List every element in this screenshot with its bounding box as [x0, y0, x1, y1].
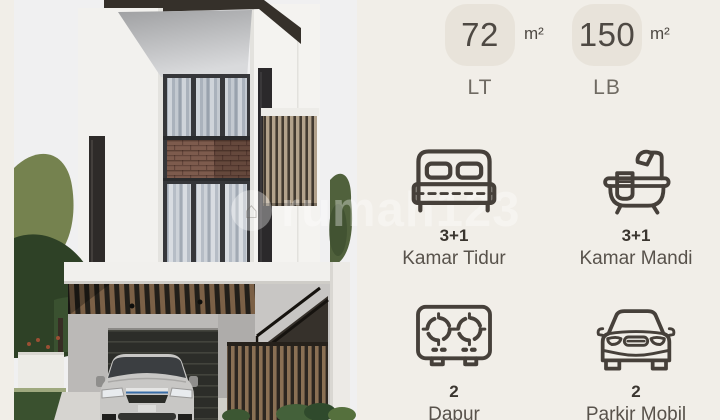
parking-count: 2 — [571, 382, 701, 402]
bathroom-feature: 3+1 Kamar Mandi — [571, 142, 701, 270]
specs-panel: 72 m² LT 150 m² LB 3+1 Kamar Tidur — [357, 0, 720, 420]
land-area-unit: m² — [524, 24, 544, 44]
bathroom-count: 3+1 — [571, 226, 701, 246]
bedroom-label: Kamar Tidur — [389, 248, 519, 270]
car-icon — [571, 300, 701, 372]
bedroom-count: 3+1 — [389, 226, 519, 246]
parking-label: Parkir Mobil — [571, 404, 701, 420]
kitchen-label: Dapur — [389, 404, 519, 420]
building-area-unit: m² — [650, 24, 670, 44]
building-area-value: 150 — [579, 16, 636, 54]
stove-icon — [389, 300, 519, 372]
land-area-card: 72 — [445, 4, 515, 66]
land-area-label: LT — [430, 76, 530, 100]
tree-trunk — [58, 318, 63, 354]
house-render-photo — [14, 0, 357, 420]
property-listing-card: { "watermark": { "brand": "rumah123" }, … — [0, 0, 720, 420]
white-fence — [18, 352, 64, 392]
beam-shadow — [64, 281, 350, 284]
wood-slat-screen — [263, 116, 317, 206]
building-area-card: 150 — [572, 4, 642, 66]
downlight — [130, 304, 135, 309]
parking-feature: 2 Parkir Mobil — [571, 300, 701, 420]
glazing — [163, 74, 250, 270]
kitchen-feature: 2 Dapur — [389, 300, 519, 420]
bed-icon — [389, 142, 519, 216]
bathtub-icon — [571, 142, 701, 216]
bedroom-feature: 3+1 Kamar Tidur — [389, 142, 519, 270]
bathroom-label: Kamar Mandi — [571, 248, 701, 270]
building-area-label: LB — [557, 76, 657, 100]
land-area-value: 72 — [461, 16, 499, 54]
kitchen-count: 2 — [389, 382, 519, 402]
pillar-shade — [330, 262, 333, 420]
downlight — [198, 300, 203, 305]
carport-beam — [64, 262, 350, 284]
